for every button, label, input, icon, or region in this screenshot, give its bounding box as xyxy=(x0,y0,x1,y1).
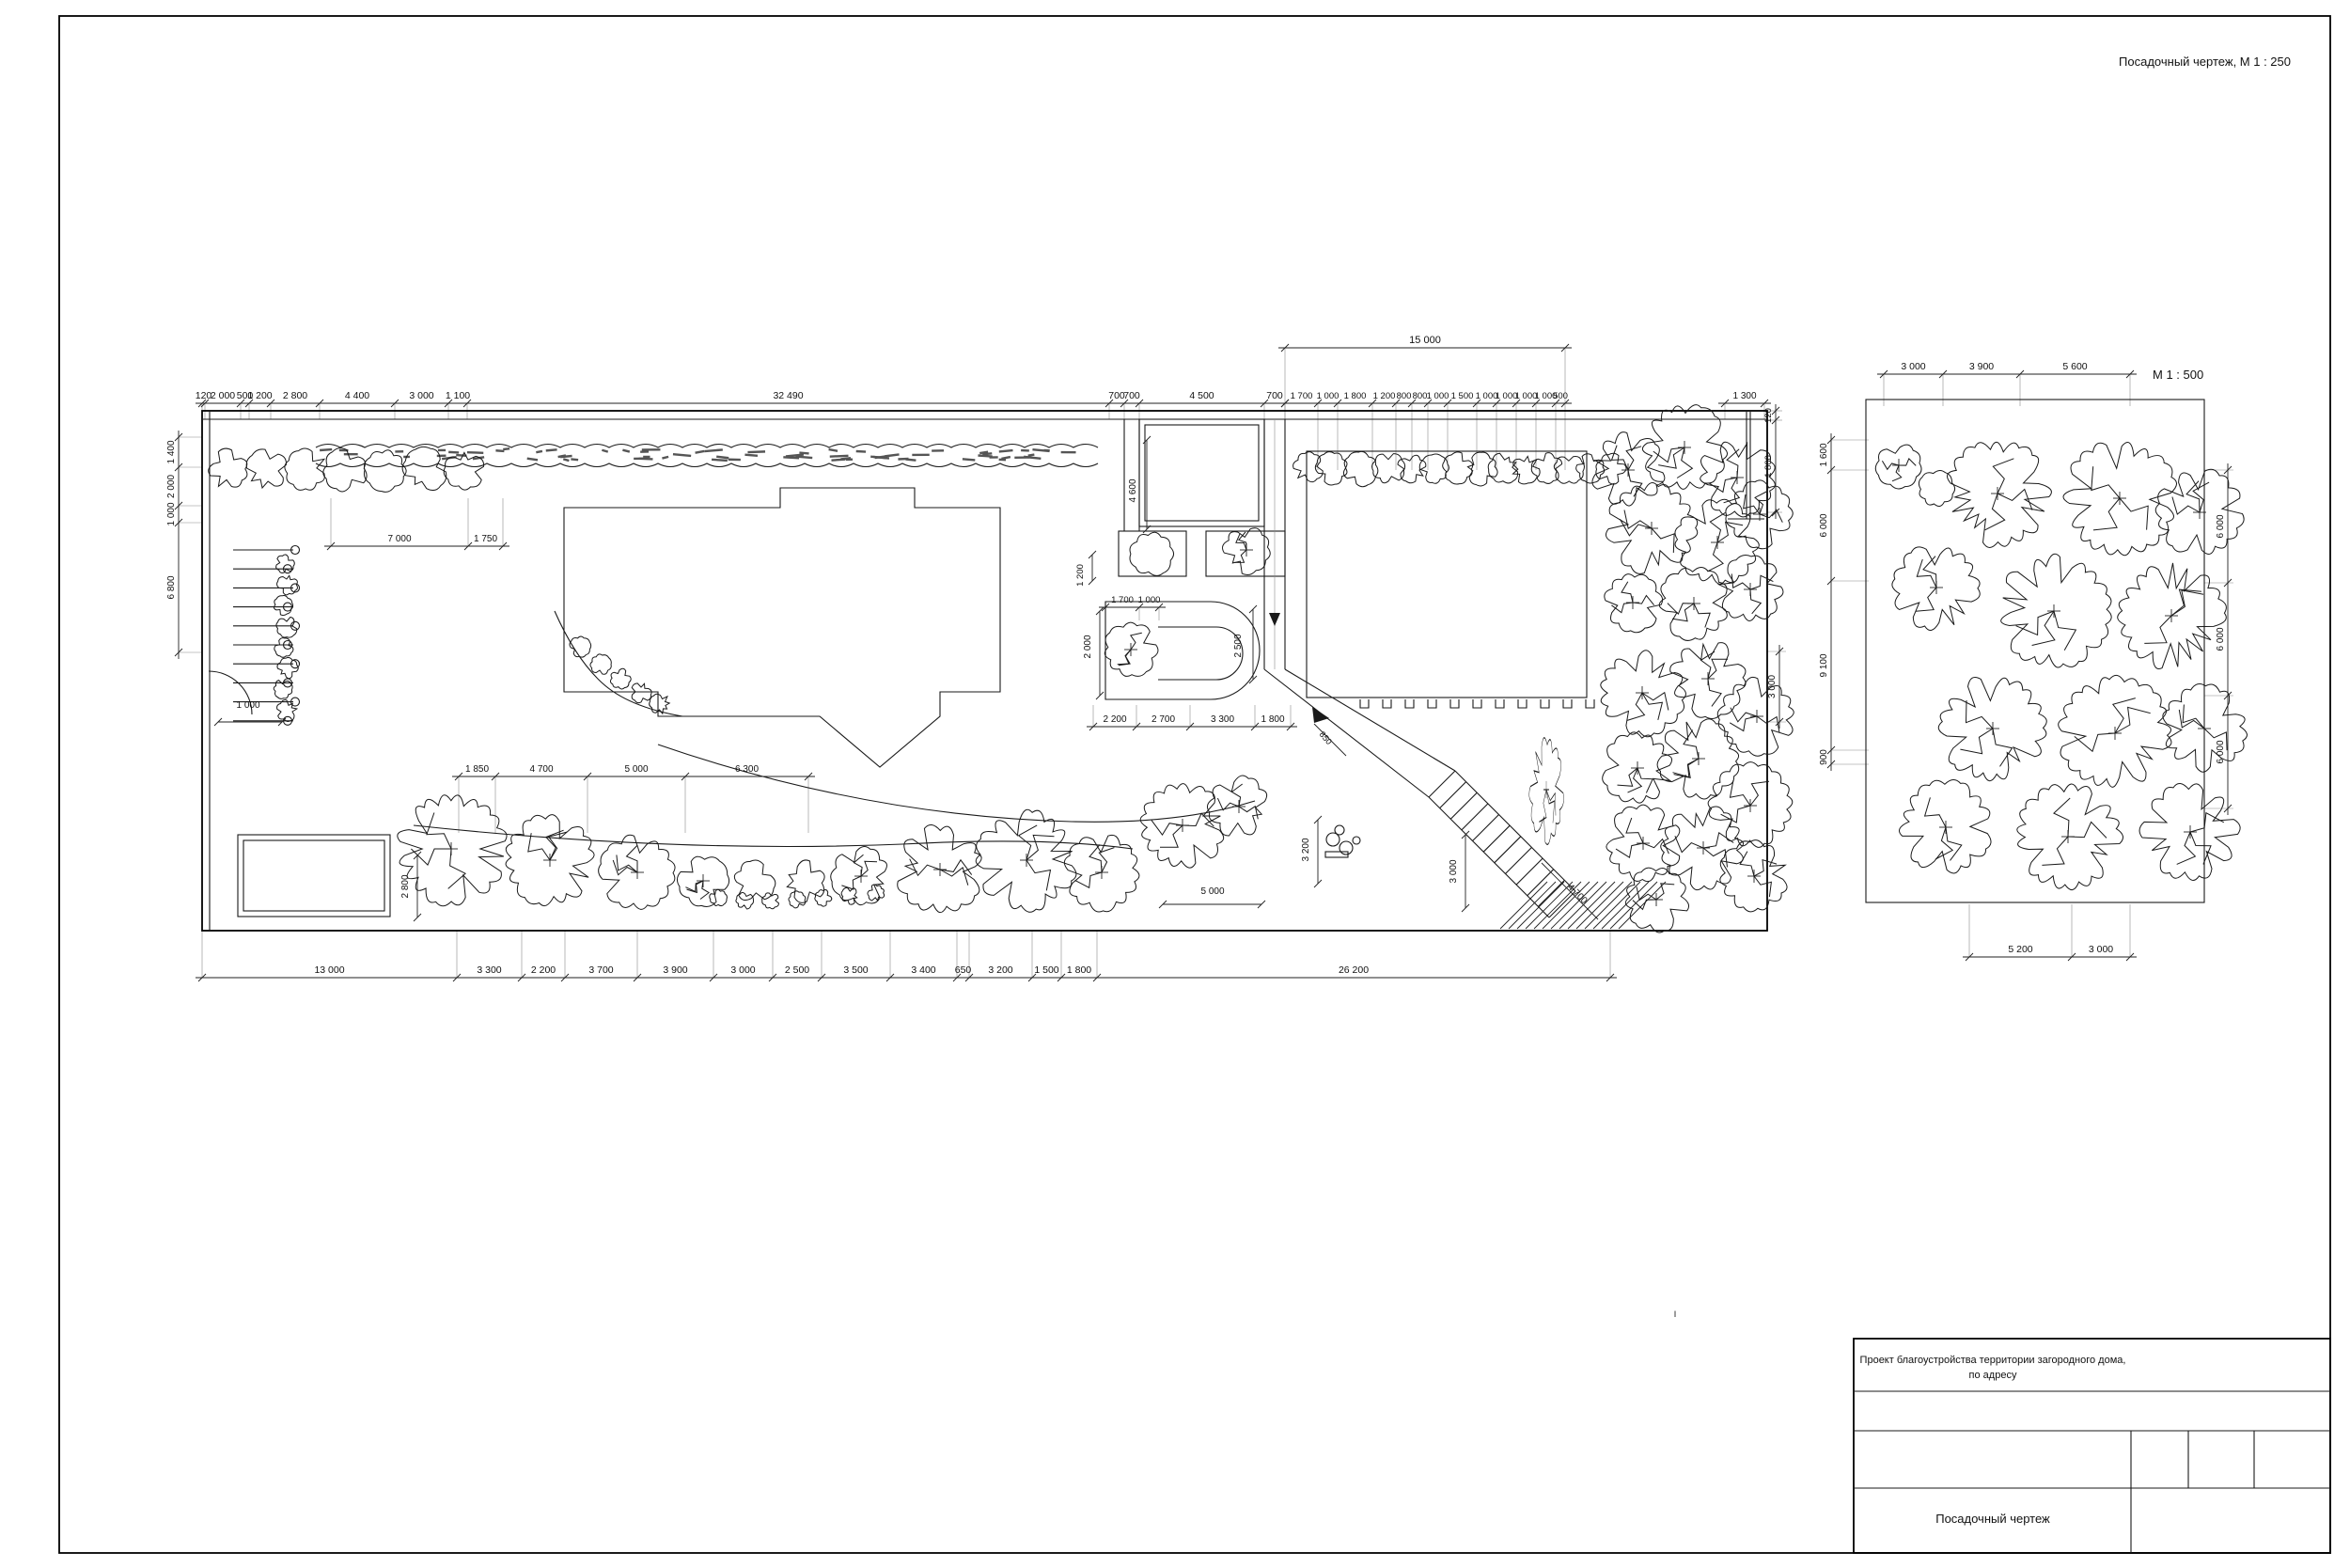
tree-symbol xyxy=(1419,454,1449,483)
tree-symbol xyxy=(1625,868,1688,933)
tree-branch xyxy=(1232,784,1243,807)
dimension-label: 5 600 xyxy=(2062,361,2087,372)
tree-branch xyxy=(1618,768,1638,786)
dimension-label: 1 000 xyxy=(1138,595,1161,605)
dimension-label: 15 000 xyxy=(1409,335,1441,346)
drawing-line xyxy=(999,450,1013,451)
tree-symbol xyxy=(1719,555,1783,620)
tree-branch xyxy=(448,849,465,888)
drawing-line xyxy=(712,460,728,461)
tree-branch xyxy=(1760,510,1782,522)
dimension-chain: 5 2003 000 xyxy=(1963,944,2137,961)
lawn-area xyxy=(1307,451,1587,698)
drawing-line xyxy=(503,448,509,449)
dimension-label: 1 400 xyxy=(166,440,177,463)
dimension-label: 1 000 xyxy=(1317,391,1339,401)
dimension-label: 2 000 xyxy=(1083,635,1093,658)
tree-branch xyxy=(1985,494,2005,530)
tree-symbol xyxy=(1700,442,1776,517)
dimension-chains: 1202 0005001 2002 8004 4003 0001 10032 4… xyxy=(166,335,2232,1319)
drawing-line xyxy=(747,451,765,452)
tree-branch xyxy=(1708,679,1721,706)
dimension-label: 1 000 xyxy=(166,502,177,525)
dimension-chain: 15 000 xyxy=(1278,335,1572,352)
lawn-edge-curve xyxy=(658,745,1255,822)
dimension-label: 32 490 xyxy=(773,390,803,401)
tree-branch xyxy=(1993,459,2013,494)
tree-branch xyxy=(1946,827,1962,860)
edging-mark xyxy=(1586,699,1594,708)
tree-branch xyxy=(1026,860,1051,890)
dimension-chain: 13 0003 3002 2003 7003 9003 0002 5003 50… xyxy=(196,964,1617,981)
drawing-line xyxy=(1440,782,1466,808)
extension-lines xyxy=(179,348,2233,978)
dimension-label: 3 900 xyxy=(1969,361,1994,372)
drawing-line xyxy=(456,455,466,456)
dimension-label: 650 xyxy=(955,964,972,976)
dimension-label: 6 300 xyxy=(735,764,759,775)
tree-branch xyxy=(1707,542,1723,572)
dimension-label: 3 000 xyxy=(409,390,433,401)
tree-symbol xyxy=(787,860,824,902)
dimension-chain: 1 6006 0009 100900 xyxy=(1819,433,1835,771)
tree-branch xyxy=(1160,825,1183,847)
tree-branch xyxy=(2120,498,2148,530)
tree-symbol xyxy=(209,448,247,487)
drawing-line xyxy=(558,455,566,457)
shed-outline xyxy=(238,835,390,917)
tree-branch xyxy=(1234,550,1247,562)
tree-branch xyxy=(1730,716,1757,731)
drawing-line xyxy=(536,451,542,452)
dimension-label: 500 xyxy=(1553,391,1568,401)
tree-branch xyxy=(2144,616,2171,643)
dimension-label: 1 300 xyxy=(1732,391,1756,401)
dimension-label: 3 000 xyxy=(1767,675,1778,698)
tree-branch xyxy=(1642,693,1668,711)
page-border xyxy=(59,16,2330,1553)
dimension-label: 5 000 xyxy=(1200,886,1224,897)
drawing-line xyxy=(1527,870,1554,896)
tree-branch xyxy=(2093,498,2120,530)
tree-symbol xyxy=(898,824,981,912)
dimension-label: 120 xyxy=(196,390,212,401)
tree-branch xyxy=(1993,729,2013,766)
tree-branch xyxy=(1892,465,1902,481)
shed-inner-wall xyxy=(243,840,384,911)
tree-symbol xyxy=(1130,532,1174,575)
dimension-label: 6 800 xyxy=(166,575,177,599)
hedge-outline xyxy=(316,463,1098,467)
dimension-label: 1 800 xyxy=(1763,455,1774,478)
tree-branch xyxy=(687,881,704,892)
dimension-label: 3 400 xyxy=(911,964,935,976)
dimension-label: 3 900 xyxy=(663,964,687,976)
dimension-label: 2 800 xyxy=(283,390,307,401)
dimension-chain: 1 4002 0001 0006 800 xyxy=(166,431,182,659)
tree-symbol xyxy=(1605,574,1663,633)
dimension-label: 1 800 xyxy=(1344,391,1367,401)
edging-mark xyxy=(1518,699,1527,708)
tree-symbol xyxy=(762,893,779,909)
drawing-line xyxy=(639,459,653,460)
tree-branch xyxy=(1882,461,1899,469)
dimension-label: 3 300 xyxy=(1211,714,1234,725)
tree-branch xyxy=(1935,827,1952,859)
tree-symbol xyxy=(868,885,885,901)
dimension-label: 2 700 xyxy=(1151,714,1175,725)
dimension-label: 1 500 xyxy=(1034,964,1058,976)
drawing-line xyxy=(799,453,808,454)
dimension-label: 2 200 xyxy=(1103,714,1126,725)
titleblock-project-line2: по адресу xyxy=(1969,1370,2017,1381)
dimension-chain: 1 7001 0001 8001 2008008001 0001 5001 00… xyxy=(1278,391,1572,407)
tree-branch xyxy=(1628,470,1642,496)
tree-branch xyxy=(1151,821,1183,836)
drawing-line xyxy=(831,460,844,461)
dimension-label: 6 000 xyxy=(2216,740,2226,763)
tree-branch xyxy=(861,861,877,876)
dimension-label: 3 500 xyxy=(843,964,868,976)
dimension-chain: 3 0003 9005 600 xyxy=(1877,361,2137,378)
tree-symbol xyxy=(1596,453,1626,484)
tree-branch xyxy=(427,813,451,850)
tree-symbol xyxy=(2163,683,2248,772)
tree-symbol xyxy=(650,694,670,713)
tree-branch xyxy=(1546,790,1555,823)
tree-branch xyxy=(700,881,709,900)
dimension-label: 3 200 xyxy=(988,964,1012,976)
tree-symbol xyxy=(285,448,324,490)
drawing-line xyxy=(906,460,916,461)
tree-symbol xyxy=(277,700,297,722)
tree-branch xyxy=(2075,733,2115,751)
tree-branch xyxy=(1668,604,1694,615)
tree-symbol xyxy=(246,449,286,488)
tree-symbol xyxy=(1443,452,1473,484)
dimension-label: 1 700 xyxy=(1291,391,1313,401)
tree-symbol xyxy=(789,891,806,908)
dimension-chain: 2 2002 7003 3001 800 xyxy=(1087,714,1297,730)
drawing-line xyxy=(1001,457,1010,459)
tree-branch xyxy=(1744,494,1760,514)
drawing-line xyxy=(448,452,459,453)
tree-branch xyxy=(617,855,637,872)
drawing-line xyxy=(571,459,578,460)
tree-branch xyxy=(1997,490,2032,510)
drawing-line xyxy=(1505,847,1531,873)
play-equipment xyxy=(1353,837,1360,844)
drawing-line xyxy=(885,454,899,456)
dimension-label: 4 400 xyxy=(345,390,369,401)
tree-branch xyxy=(1637,886,1656,900)
dimension-label: 13 000 xyxy=(314,964,344,976)
tree-symbol xyxy=(1554,457,1584,484)
drawing-line xyxy=(467,452,483,453)
dimension-label: 1 000 xyxy=(236,700,259,711)
tree-branch xyxy=(1731,780,1751,806)
tree-symbol xyxy=(1372,454,1405,483)
tree-symbol xyxy=(277,575,298,595)
dimension-label: 5 200 xyxy=(2008,944,2032,955)
sheet-labels: Посадочный чертеж, М 1 : 250М 1 : 500Про… xyxy=(1860,55,2291,1526)
path-direction-arrow xyxy=(1269,613,1280,626)
drawing-line xyxy=(546,449,557,450)
dimension-label: 1 200 xyxy=(1075,564,1086,587)
dimension-label: I xyxy=(1674,1309,1677,1319)
planter-right xyxy=(1206,531,1285,576)
sheet-title: Посадочный чертеж, М 1 : 250 xyxy=(2119,55,2291,69)
dimension-label: 3 000 xyxy=(1449,859,1459,883)
dimension-label: 3 200 xyxy=(1301,838,1311,861)
tree-branch xyxy=(1675,836,1703,852)
dimension-label: 3 000 xyxy=(1901,361,1925,372)
tree-branch xyxy=(1131,633,1142,650)
tree-branch xyxy=(2190,813,2224,832)
tree-branch xyxy=(2091,466,2120,498)
tree-symbol xyxy=(610,668,631,689)
tree-branch xyxy=(1628,768,1642,792)
tree-symbol xyxy=(736,892,754,909)
tree-branch xyxy=(1754,876,1771,897)
dimension-label: 1 100 xyxy=(446,390,470,401)
tree-branch xyxy=(1642,693,1662,720)
tree-symbol xyxy=(1513,456,1541,483)
dimension-label: 4 700 xyxy=(529,764,553,775)
tree-branch xyxy=(2190,832,2211,865)
dimension-label: 6 000 xyxy=(2216,627,2226,651)
play-equipment xyxy=(1339,841,1353,855)
drawing-line xyxy=(1495,837,1521,863)
tree-branch xyxy=(1708,659,1728,679)
pool-inner-wall xyxy=(1158,627,1243,680)
dimension-label: 1 800 xyxy=(1261,714,1284,725)
edging-mark xyxy=(1450,699,1459,708)
walk-rail-left xyxy=(1264,669,1429,797)
path-direction-arrow xyxy=(1312,707,1329,723)
tree-symbols xyxy=(209,405,2248,933)
dimension-label: 2 500 xyxy=(785,964,809,976)
drawing-line xyxy=(979,452,988,453)
dimension-label: 3 000 xyxy=(730,964,755,976)
tree-branch xyxy=(1925,797,1946,827)
tree-branch xyxy=(1620,519,1652,536)
edging-mark xyxy=(1360,699,1369,708)
dimension-label: 4 500 xyxy=(1189,390,1214,401)
tree-symbol xyxy=(364,450,406,493)
tree-branch xyxy=(1731,708,1757,722)
tree-branch xyxy=(2054,611,2076,651)
dimension-chain: 1202 0005001 2002 8004 4003 0001 10032 4… xyxy=(196,390,1292,407)
dimension-label: 1 800 xyxy=(1067,964,1091,976)
dimension-label: 7 000 xyxy=(387,534,411,544)
drawing-line xyxy=(1483,825,1510,852)
edging-mark xyxy=(1496,699,1504,708)
drawing-line xyxy=(1455,771,1575,891)
titleblock-frame xyxy=(1854,1339,2330,1553)
tree-branch xyxy=(1616,843,1643,857)
edging-mark xyxy=(1473,699,1481,708)
tree-branch xyxy=(1960,729,1993,754)
detail-plan-border xyxy=(1866,400,2204,902)
tree-branch xyxy=(1750,589,1761,614)
tree-branch xyxy=(2032,611,2055,646)
detail-scale-label: М 1 : 500 xyxy=(2153,368,2203,382)
tree-branch xyxy=(1684,730,1699,760)
drawing-line xyxy=(1473,815,1499,841)
tree-branch xyxy=(841,876,861,889)
tree-branch xyxy=(1621,582,1633,603)
drawing-line xyxy=(622,450,629,452)
dimension-label: 1 200 xyxy=(1373,391,1396,401)
tree-branch xyxy=(1089,844,1102,872)
tree-branch xyxy=(1899,459,1916,466)
dimension-label: 1 200 xyxy=(247,390,272,401)
tree-symbol xyxy=(590,654,611,674)
flower-bed-edge xyxy=(555,611,682,716)
tree-branch xyxy=(1656,884,1674,900)
drawing-line xyxy=(1028,455,1035,456)
dimension-label: 4 600 xyxy=(1128,478,1138,502)
tree-branch xyxy=(1239,807,1258,820)
dimension-chain: 6 0006 0006 000 xyxy=(2216,463,2232,815)
tree-branch xyxy=(1652,528,1674,553)
tree-branch xyxy=(1750,781,1769,806)
dimension-label: 2 800 xyxy=(400,874,411,898)
titleblock-project-line1: Проект благоустройства территории загоро… xyxy=(1860,1355,2126,1366)
dimension-chain: 1201 800 xyxy=(1763,404,1779,519)
walk-rail-right xyxy=(1285,669,1455,771)
tree-branch xyxy=(2115,707,2151,733)
dimension-label: 6 000 xyxy=(2216,514,2226,538)
site-plan-drawing: 1202 0005001 2002 8004 4003 0001 10032 4… xyxy=(0,0,2350,1568)
tree-symbol xyxy=(402,447,446,490)
dimension-label: 800 xyxy=(1413,391,1428,401)
tree-branch xyxy=(2042,837,2068,865)
dimension-label: 900 xyxy=(1819,749,1829,765)
tree-symbol xyxy=(276,555,295,572)
garage-inner-wall xyxy=(1145,425,1259,521)
tree-branch xyxy=(2186,481,2200,512)
tree-branch xyxy=(1717,522,1743,542)
drawing-line xyxy=(795,457,812,458)
tree-symbol xyxy=(710,889,728,905)
dimension-label: 2 200 xyxy=(531,964,556,976)
tree-branch xyxy=(1626,818,1643,843)
dimension-label: 5 000 xyxy=(624,764,648,775)
tree-symbol xyxy=(1488,453,1517,483)
planter-left xyxy=(1119,531,1186,576)
garage-outline xyxy=(1139,419,1264,526)
play-equipment xyxy=(1335,825,1344,835)
dimension-chain: 1 7001 000 xyxy=(1099,595,1166,611)
tree-branch xyxy=(1624,510,1652,529)
tree-branch xyxy=(1750,575,1773,589)
dimension-label: 3 000 xyxy=(2089,944,2113,955)
tree-branch xyxy=(1757,716,1779,732)
dimension-label: 1 600 xyxy=(1819,443,1829,466)
drawing-line xyxy=(602,450,607,452)
dimension-chain: 7 0001 750 xyxy=(324,534,509,550)
dimension-chain: 1 300 xyxy=(1718,391,1771,407)
dimension-label: 1 000 xyxy=(1427,391,1449,401)
tree-symbol xyxy=(1642,405,1727,490)
planting-bed-edge xyxy=(414,825,1133,849)
tree-symbol xyxy=(841,887,857,904)
tree-symbol xyxy=(1919,470,1954,506)
drawing-line xyxy=(829,449,838,451)
drawing-line xyxy=(704,449,723,451)
dimension-label: 2 500 xyxy=(1233,634,1244,657)
dimension-label: 3 300 xyxy=(477,964,501,976)
dimension-label: 700 xyxy=(1123,390,1140,401)
dimension-label: 6 000 xyxy=(1819,513,1829,537)
drawing-line xyxy=(1429,771,1455,797)
edging-mark xyxy=(1405,699,1414,708)
tree-symbol xyxy=(398,795,507,906)
dimension-label: 850 xyxy=(1318,729,1334,746)
dimension-label: 800 xyxy=(1397,391,1412,401)
juniper-symbol xyxy=(1529,738,1564,845)
dimension-label: 9 100 xyxy=(1819,653,1829,677)
drawing-sheet: 1202 0005001 2002 8004 4003 0001 10032 4… xyxy=(0,0,2350,1568)
tree-branch xyxy=(1633,596,1654,605)
dimension-label: 1 850 xyxy=(465,764,489,775)
tree-symbol xyxy=(1293,452,1324,482)
tree-symbol xyxy=(276,618,297,638)
tree-branch xyxy=(1694,604,1710,628)
drawing-line xyxy=(563,459,569,461)
drawing-line xyxy=(1516,858,1543,885)
dimension-label: 1 700 xyxy=(1111,595,1134,605)
dimension-chain: 3 000 xyxy=(1767,645,1783,729)
drawing-line xyxy=(1450,792,1477,819)
tree-branch xyxy=(1633,900,1656,909)
drawing-line xyxy=(716,457,728,459)
tree-branch xyxy=(1674,759,1699,777)
drawing-line xyxy=(495,450,504,451)
drawing-line xyxy=(830,456,849,457)
titleblock-doc-title: Посадочный чертеж xyxy=(1935,1512,2050,1526)
dimension-label: 1 500 xyxy=(1451,391,1474,401)
drawing-line xyxy=(662,457,668,459)
tree-branch xyxy=(1653,447,1684,463)
tree-branch xyxy=(1637,768,1653,793)
edging-mark xyxy=(1428,699,1436,708)
edging-mark xyxy=(1563,699,1572,708)
edging-mark xyxy=(1541,699,1549,708)
tree-branch xyxy=(1727,449,1739,478)
dimension-chain: 1 8504 7005 0006 300 xyxy=(452,764,815,780)
drawing-line xyxy=(1462,804,1488,830)
house-footprint xyxy=(564,488,1000,767)
dimension-label: 120 xyxy=(1763,408,1774,423)
dimension-label: 700 xyxy=(1266,390,1283,401)
drawing-line xyxy=(527,459,538,461)
hedge-outline xyxy=(316,445,1098,448)
drawing-line xyxy=(856,451,866,452)
tree-branch xyxy=(1539,790,1546,822)
tree-branch xyxy=(1626,447,1641,470)
dimension-label: 26 200 xyxy=(1339,964,1369,976)
drawing-line xyxy=(696,451,705,453)
tree-branch xyxy=(1916,588,1936,611)
edging-mark xyxy=(1383,699,1391,708)
drawing-line xyxy=(963,459,975,460)
tree-branch xyxy=(1019,825,1038,860)
drawing-line xyxy=(873,457,889,459)
drawing-line xyxy=(320,449,332,450)
